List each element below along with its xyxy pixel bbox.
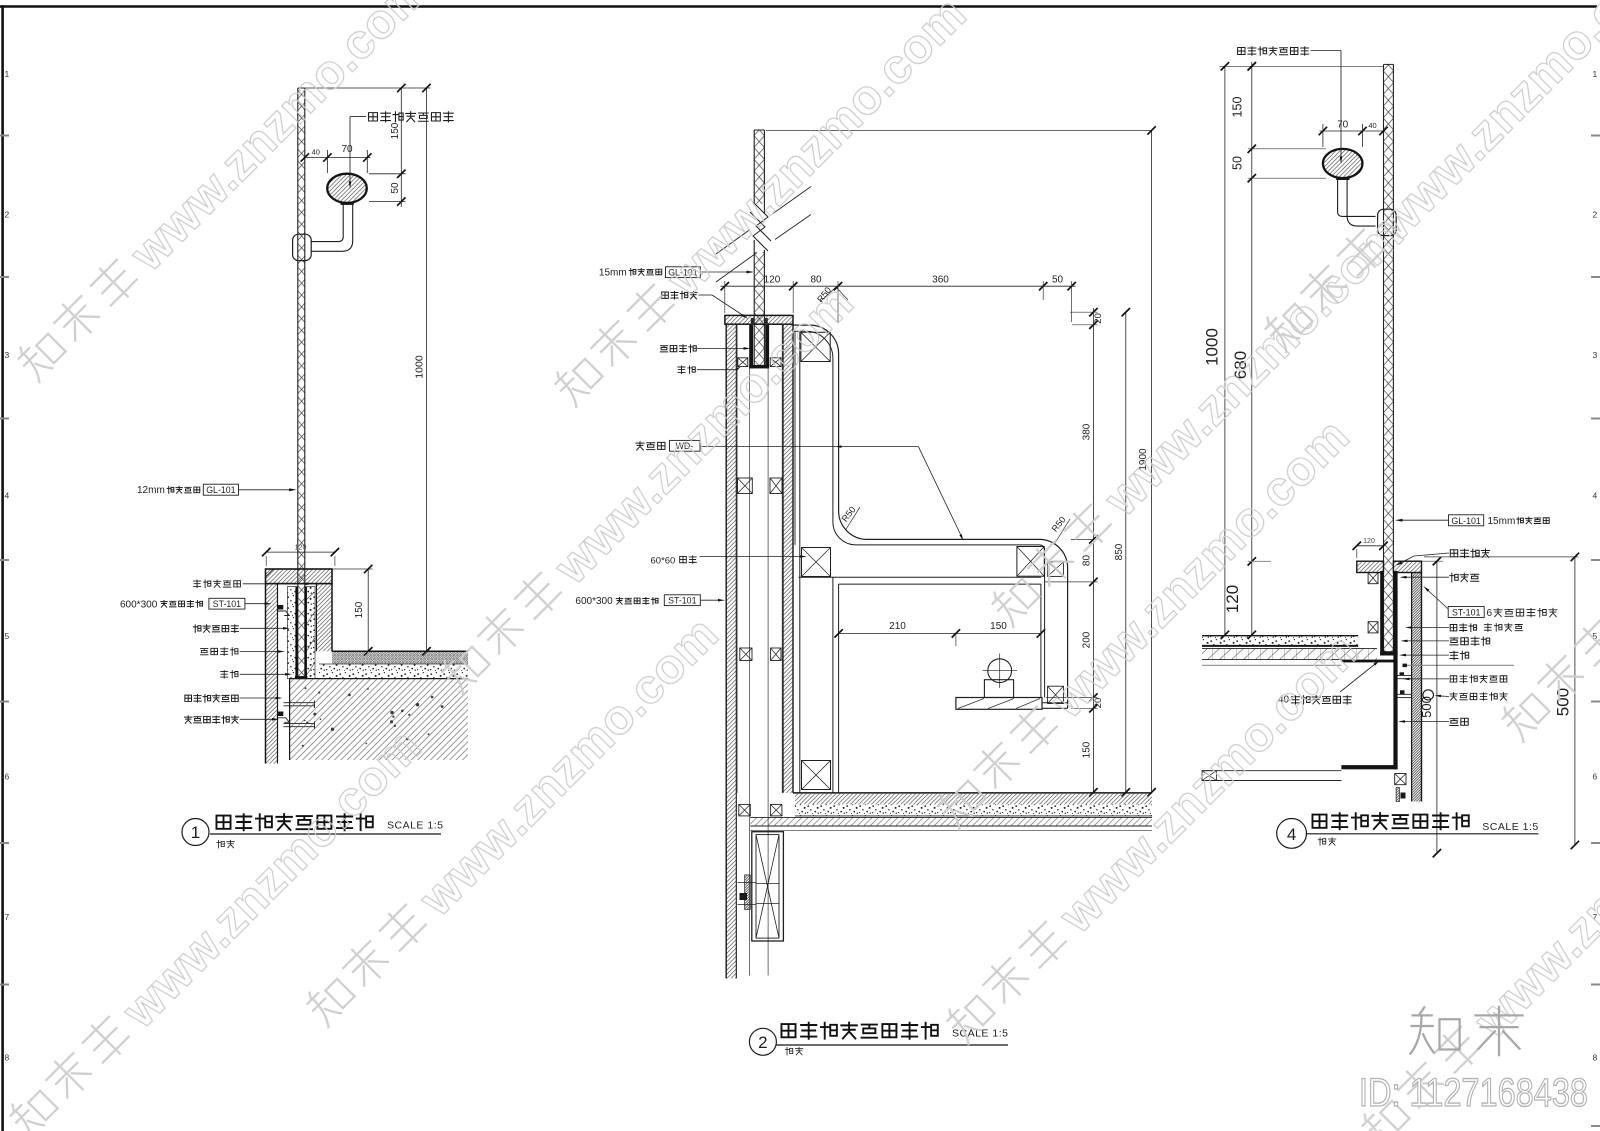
svg-text:70: 70 [1337, 119, 1349, 130]
svg-text:6: 6 [1487, 608, 1493, 619]
svg-text:20: 20 [1093, 313, 1104, 324]
svg-text:7: 7 [5, 912, 10, 922]
svg-text:50: 50 [390, 182, 401, 194]
svg-text:1: 1 [1593, 69, 1598, 79]
svg-text:120: 120 [1363, 538, 1375, 545]
svg-text:1000: 1000 [1203, 328, 1222, 366]
svg-text:2: 2 [758, 1033, 767, 1052]
svg-text:120: 120 [1223, 585, 1242, 613]
svg-text:ST-101: ST-101 [668, 596, 696, 606]
svg-text:12mm: 12mm [137, 485, 165, 496]
svg-text:150: 150 [390, 122, 401, 139]
svg-text:360: 360 [932, 275, 949, 286]
svg-text:4: 4 [1287, 825, 1296, 844]
svg-text:15mm: 15mm [599, 267, 627, 278]
svg-text:210: 210 [889, 621, 906, 632]
svg-text:150: 150 [354, 601, 365, 618]
svg-text:50: 50 [1231, 156, 1245, 170]
svg-text:ID: 1127168438: ID: 1127168438 [1359, 1071, 1588, 1115]
svg-text:SCALE 1:5: SCALE 1:5 [387, 820, 443, 832]
svg-text:40: 40 [1368, 121, 1376, 130]
svg-text:850: 850 [1114, 543, 1125, 560]
svg-text:1000: 1000 [414, 355, 426, 379]
svg-text:2: 2 [1593, 210, 1598, 220]
svg-text:8: 8 [1593, 1053, 1598, 1063]
svg-text:80: 80 [1082, 555, 1093, 567]
svg-text:4: 4 [5, 491, 10, 501]
svg-text:150: 150 [1231, 97, 1245, 118]
svg-text:120: 120 [764, 275, 781, 286]
svg-text:3: 3 [5, 350, 10, 360]
svg-text:1: 1 [5, 69, 10, 79]
svg-text:SCALE 1:5: SCALE 1:5 [1482, 821, 1538, 833]
svg-text:70: 70 [341, 144, 353, 155]
svg-text:ST-101: ST-101 [213, 599, 241, 609]
svg-text:ST-101: ST-101 [1452, 607, 1480, 617]
svg-text:6: 6 [1593, 772, 1598, 782]
svg-text:60*60: 60*60 [651, 555, 676, 566]
svg-text:15mm: 15mm [1488, 516, 1516, 527]
svg-text:GL-101: GL-101 [206, 485, 235, 495]
svg-text:40: 40 [312, 147, 320, 156]
svg-text:600*300: 600*300 [575, 596, 613, 607]
svg-text:5: 5 [5, 631, 10, 641]
svg-text:150: 150 [990, 621, 1007, 632]
svg-text:500: 500 [1419, 696, 1434, 718]
svg-text:120: 120 [295, 545, 307, 552]
svg-text:150: 150 [1082, 741, 1093, 758]
svg-text:1: 1 [191, 823, 200, 842]
svg-text:4: 4 [1593, 491, 1598, 501]
svg-text:600*300: 600*300 [120, 599, 158, 610]
svg-text:GL-101: GL-101 [1451, 516, 1480, 526]
svg-text:2: 2 [5, 210, 10, 220]
svg-text:8: 8 [5, 1053, 10, 1063]
svg-text:500: 500 [1554, 688, 1573, 716]
svg-text:3: 3 [1593, 350, 1598, 360]
svg-text:380: 380 [1082, 423, 1093, 440]
svg-text:50: 50 [1052, 275, 1064, 286]
svg-text:6: 6 [5, 772, 10, 782]
